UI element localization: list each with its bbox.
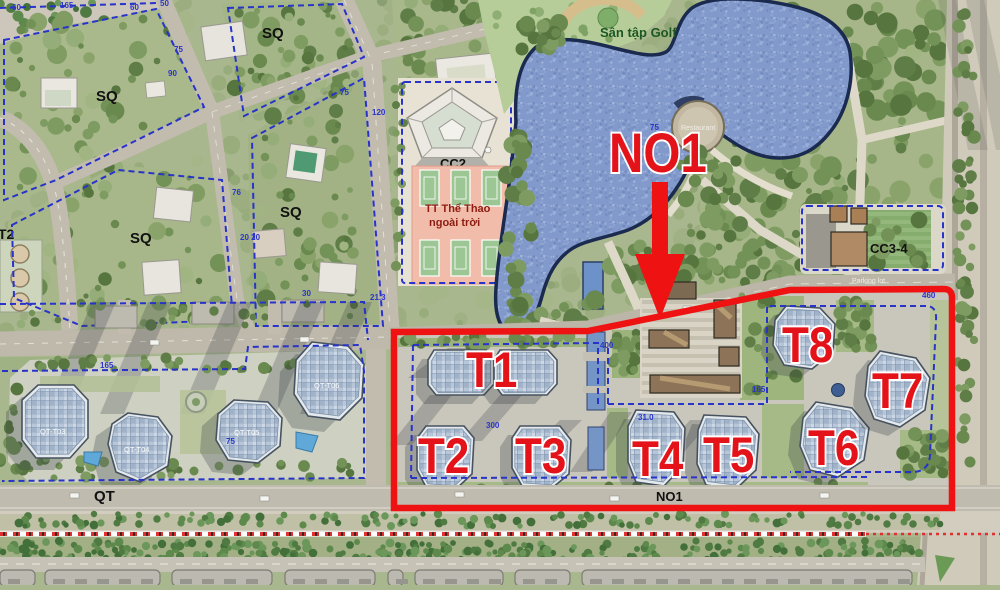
svg-text:165: 165 (60, 1, 74, 10)
svg-text:QT-T06: QT-T06 (314, 381, 339, 390)
svg-text:SQ: SQ (280, 204, 302, 221)
svg-text:75: 75 (226, 437, 235, 446)
svg-text:76: 76 (232, 188, 241, 197)
svg-text:60: 60 (12, 3, 21, 12)
svg-text:165: 165 (100, 361, 114, 370)
svg-text:QT: QT (94, 488, 115, 505)
svg-text:21.3: 21.3 (370, 293, 386, 302)
svg-text:75: 75 (340, 88, 349, 97)
svg-text:T3: T3 (515, 427, 566, 483)
svg-text:T1: T1 (466, 341, 517, 397)
svg-text:SQ: SQ (130, 230, 152, 247)
svg-text:T5: T5 (703, 426, 754, 482)
svg-text:SQ: SQ (262, 25, 284, 42)
svg-text:300: 300 (486, 421, 500, 430)
svg-text:31.0: 31.0 (638, 413, 654, 422)
svg-text:Sân tập Golf: Sân tập Golf (600, 25, 677, 40)
svg-text:TT Thể Thao: TT Thể Thao (425, 203, 491, 215)
svg-text:120: 120 (372, 108, 386, 117)
svg-text:30: 30 (302, 289, 311, 298)
svg-text:400: 400 (600, 341, 614, 350)
svg-text:QT-T03: QT-T03 (40, 427, 65, 436)
svg-text:75: 75 (650, 123, 659, 132)
svg-text:CC3-4: CC3-4 (870, 241, 908, 256)
svg-text:75: 75 (174, 45, 183, 54)
svg-text:QT-T04: QT-T04 (124, 445, 149, 454)
svg-text:90: 90 (168, 69, 177, 78)
svg-text:T2: T2 (418, 427, 469, 483)
svg-text:50: 50 (160, 0, 169, 8)
svg-text:ngoài trời: ngoài trời (429, 217, 480, 229)
svg-text:165: 165 (752, 385, 766, 394)
svg-text:20 20: 20 20 (240, 233, 261, 242)
svg-text:SQ: SQ (96, 88, 118, 105)
svg-text:T4: T4 (632, 430, 683, 486)
svg-text:T6: T6 (808, 419, 859, 475)
svg-text:460: 460 (922, 291, 936, 300)
svg-text:NO1: NO1 (656, 489, 683, 504)
svg-text:60: 60 (130, 3, 139, 12)
svg-text:Parking lot: Parking lot (852, 278, 885, 285)
svg-text:T8: T8 (782, 316, 833, 372)
svg-text:T7: T7 (872, 362, 923, 418)
svg-text:QT-T05: QT-T05 (234, 428, 259, 437)
